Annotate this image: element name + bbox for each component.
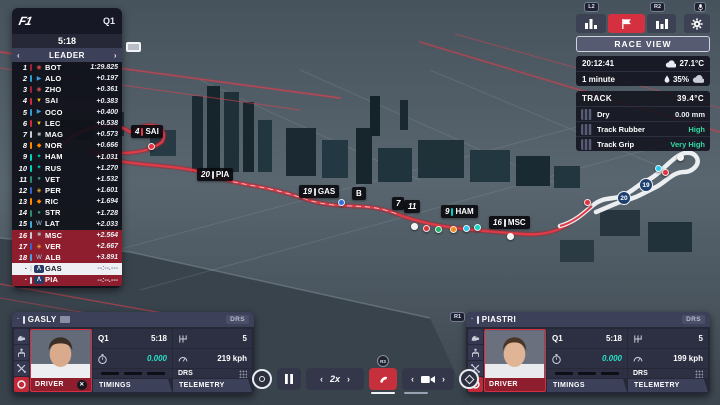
telemetry-view-button[interactable] [647, 14, 677, 33]
piastri-drs-badge: DRS [682, 315, 705, 324]
driver-code: PIA [45, 276, 58, 284]
aston-team-icon: ● [34, 175, 44, 183]
controller-hints: L2 R2 [576, 2, 710, 13]
leaderboard-row-lat[interactable]: 15WLAT+2.033 [12, 219, 122, 230]
team-color-bar [30, 120, 32, 127]
team-color-bar [30, 277, 32, 284]
leaderboard-row-sai[interactable]: 4▼SAI+0.383 [12, 96, 122, 107]
speedometer-icon [178, 354, 188, 363]
team-color-bar [30, 98, 32, 105]
helmet-icon[interactable] [468, 329, 483, 344]
driver-code: OCO [45, 109, 63, 117]
leaderboard-row-mag[interactable]: 7■MAG+0.573 [12, 129, 122, 140]
car-number: 9 [445, 207, 449, 216]
position-number: 7 [16, 131, 27, 139]
piastri-telemetry-tab[interactable]: TELEMETRY [628, 379, 708, 392]
ferrari-team-icon: ▼ [34, 120, 44, 128]
lap-time: +0.538 [96, 120, 118, 127]
team-color-bar [30, 265, 32, 272]
leaderboard-mode-bar: ‹ LEADER › [12, 48, 122, 62]
pit-wall-icon[interactable] [14, 345, 29, 360]
driver-code: ZHO [45, 86, 61, 94]
team-color-bar [30, 142, 32, 149]
piastri-timings-tab[interactable]: TIMINGS [547, 379, 627, 392]
gear-value: 5 [243, 334, 247, 343]
track-condition-row: Dry0.00 mm [576, 106, 710, 121]
car-label-pia[interactable]: 20PIA [197, 168, 233, 181]
drs-inactive-icon [695, 370, 703, 378]
driver-code: HAM [45, 153, 63, 161]
gasly-session-row: Q1 5:18 [93, 329, 172, 348]
r1-hint-label: R1 [450, 312, 465, 322]
team-color-bar [30, 154, 32, 161]
position-number: 1 [16, 64, 27, 72]
driver-code: B [356, 189, 362, 198]
car-label-gas[interactable]: 19GAS [299, 185, 339, 198]
camera-page-underline [404, 392, 428, 394]
session-timer: 5:18 [12, 34, 122, 48]
mic-icon [694, 2, 706, 12]
piastri-delta-row: 0.000 [547, 349, 627, 368]
williams-team-icon: W [34, 254, 44, 262]
gasly-quick-actions [14, 329, 29, 392]
car-number: 11 [408, 202, 416, 211]
piastri-timings-column: Q1 5:18 0.000 TIMINGS [547, 329, 627, 392]
leaderboard-row-alb[interactable]: 18WALB+3.891 [12, 252, 122, 263]
leaderboard-header: F1 Q1 [12, 8, 122, 34]
position-number: 2 [16, 75, 27, 83]
team-color-bar [30, 131, 32, 138]
gasly-delta-row: 0.000 [93, 349, 172, 368]
pause-icon [285, 374, 293, 384]
stopwatch-icon [552, 354, 561, 364]
car-setup-icon[interactable] [14, 361, 29, 376]
gasly-timings-column: Q1 5:18 0.000 TIMINGS [93, 329, 172, 392]
team-color-bar [30, 176, 32, 183]
focus-car-right-icon[interactable] [459, 369, 479, 389]
condition-label: Track Grip [597, 140, 634, 149]
redbull-team-icon: ◈ [34, 187, 44, 195]
leaderboard-row-msc[interactable]: 16■MSC+2.564 [12, 230, 122, 241]
gasly-speed-row: 219 kph [173, 349, 252, 368]
weather-forecast-row: 1 minute 35% [576, 71, 710, 86]
gasly-drs-badge: DRS [226, 315, 249, 324]
lap-time: +0.666 [96, 142, 118, 149]
radio-selected-underline [371, 392, 395, 394]
track-rows: Dry0.00 mmTrack RubberHighTrack GripVery… [576, 106, 710, 151]
focus-car-left-icon[interactable] [252, 369, 272, 389]
piastri-position: · [471, 316, 474, 323]
team-radio-button[interactable]: R3 [369, 368, 397, 390]
alpine-team-icon: ▶ [34, 75, 44, 83]
gasly-telemetry-column: 5 219 kph DRS TELEMETRY [173, 329, 252, 392]
position-number: 3 [16, 86, 27, 94]
driver-code: ALB [45, 254, 61, 262]
driver-code: MSC [45, 232, 62, 240]
track-title: TRACK [582, 94, 612, 103]
standings-view-button[interactable] [576, 14, 606, 33]
track-conditions-header: TRACK 39.4°C [576, 91, 710, 106]
mercedes-team-icon: ✦ [34, 164, 44, 172]
gasly-telemetry-tab[interactable]: TELEMETRY [173, 379, 252, 392]
leaderboard-row-ver[interactable]: 17◈VER+2.667 [12, 241, 122, 252]
leaderboard-panel: F1 Q1 5:18 ‹ LEADER › 1◉BOT1:29.8252▶ALO… [12, 8, 122, 288]
leaderboard-mode-label: LEADER [49, 51, 85, 60]
position-number: 9 [16, 153, 27, 161]
piastri-gear-row: 5 [628, 329, 708, 348]
team-color-bar [23, 316, 25, 324]
team-color-bar [141, 128, 143, 136]
delta-time: 0.000 [602, 354, 622, 363]
car-label-b[interactable]: B [352, 187, 366, 200]
weather-now-row: 20:12:41 27.1°C [576, 56, 710, 71]
humidity-value: 35% [673, 75, 689, 84]
condition-value: Very High [670, 140, 705, 149]
leaderboard-row-gas[interactable]: ·ΛGAS--:--.--- [12, 263, 122, 274]
team-color-bar [30, 254, 32, 261]
r1-button-hint: R1 [450, 312, 465, 322]
driver-panel-piastri: R1 · PIASTRI DRS DRIVER Q1 [466, 312, 710, 394]
track-temperature: 39.4°C [677, 94, 704, 103]
drs-label: DRS [633, 370, 648, 377]
onboard-camera-icon[interactable] [60, 316, 70, 323]
driver-code: PER [45, 187, 61, 195]
car-label-sai[interactable]: 4SAI [131, 125, 163, 138]
position-number: 17 [16, 243, 27, 251]
sim-speed-control: ‹ 2x › [306, 368, 364, 390]
weather-panel: 20:12:41 27.1°C 1 minute 35% [576, 56, 710, 86]
f1-logo: F1 [18, 14, 33, 28]
track-condition-row: Track RubberHigh [576, 121, 710, 136]
driver-code: VER [45, 243, 61, 251]
track-conditions-panel: TRACK 39.4°C Dry0.00 mmTrack RubberHighT… [576, 91, 710, 151]
williams-team-icon: W [34, 220, 44, 228]
car-label-msc[interactable]: 16MSC [489, 216, 530, 229]
lap-time: +0.573 [96, 131, 118, 138]
driver-code: MAG [45, 131, 63, 139]
piastri-session-row: Q1 5:18 [547, 329, 627, 348]
driver-code: SAI [145, 127, 158, 136]
sector-3-bar [147, 372, 165, 375]
piastri-sector-bars [547, 369, 627, 378]
driver-code: VET [45, 176, 60, 184]
lap-time: +1.601 [96, 187, 118, 194]
prev-column-arrow-icon[interactable]: ‹ [17, 51, 20, 60]
driver-code: STR [45, 209, 61, 217]
camera-next-arrow-icon[interactable]: › [439, 374, 448, 384]
pause-button[interactable] [277, 368, 301, 390]
lap-time: --:--.--- [97, 265, 118, 272]
condition-value: 0.00 mm [675, 110, 705, 119]
cloud-forecast-icon [692, 75, 704, 83]
piastri-telemetry-column: 5 199 kph DRS TELEMETRY [628, 329, 708, 392]
piastri-panel-header[interactable]: · PIASTRI DRS [466, 312, 710, 327]
leaderboard-row-ham[interactable]: 9✦HAM+1.031 [12, 152, 122, 163]
ferrari-team-icon: ▼ [34, 97, 44, 105]
clock-time: 20:12:41 [582, 59, 614, 68]
camera-control: ‹ › [402, 368, 454, 390]
speedometer-icon [633, 354, 643, 363]
driver-code: GAS [45, 265, 62, 273]
leaderboard-row-ric[interactable]: 13◆RIC+1.694 [12, 196, 122, 207]
piastri-speed-row: 199 kph [628, 349, 708, 368]
alphatauri-team-icon: Λ [34, 276, 44, 284]
leaderboard-rows: 1◉BOT1:29.8252▶ALO+0.1973◉ZHO+0.3614▼SAI… [12, 62, 122, 288]
position-number: · [16, 276, 27, 284]
car-number: 16 [493, 218, 502, 227]
gearbox-icon [178, 334, 188, 344]
stopwatch-icon [98, 354, 107, 364]
position-number: 5 [16, 109, 27, 117]
team-color-bar [30, 198, 32, 205]
team-color-bar [30, 221, 32, 228]
sector-1-bar [101, 372, 119, 375]
gasly-panel-header[interactable]: · GASLY DRS [12, 312, 254, 327]
driver-code: GAS [318, 187, 335, 196]
gasly-sector-bars [93, 369, 172, 378]
view-buttons [576, 14, 710, 33]
leaderboard-row-per[interactable]: 12◈PER+1.601 [12, 185, 122, 196]
driver-code: PIA [216, 170, 229, 179]
position-number: 11 [16, 176, 27, 184]
car-label-ham[interactable]: 9HAM [441, 205, 478, 218]
lap-time: 1:29.825 [90, 64, 118, 71]
next-column-arrow-icon[interactable]: › [114, 51, 117, 60]
speed-up-arrow-icon[interactable]: › [344, 374, 353, 384]
lap-time: +2.564 [96, 232, 118, 239]
position-number: 16 [16, 232, 27, 240]
sector-1-bar [555, 372, 573, 375]
leaderboard-row-str[interactable]: 14●STR+1.728 [12, 207, 122, 218]
helmet-icon[interactable] [14, 329, 29, 344]
driver-code: NOR [45, 142, 62, 150]
lap-time: +3.891 [96, 254, 118, 261]
alfa-team-icon: ◉ [34, 86, 44, 94]
alphatauri-team-icon: Λ [34, 265, 44, 273]
speed-down-arrow-icon[interactable]: ‹ [317, 374, 326, 384]
driver-label: DRIVER [35, 381, 64, 388]
lap-time: +2.033 [96, 221, 118, 228]
tyre-icon[interactable] [14, 377, 29, 392]
position-number: 4 [16, 97, 27, 105]
drs-inactive-icon [239, 370, 247, 378]
position-number: 6 [16, 120, 27, 128]
dry-surface-icon [581, 109, 592, 120]
hud-panel: L2 R2 RACE VIEW 20:12:41 [576, 2, 710, 151]
leaderboard-row-lec[interactable]: 6▼LEC+0.538 [12, 118, 122, 129]
team-color-bar [314, 188, 316, 196]
lap-time: +0.197 [96, 75, 118, 82]
car-label-11[interactable]: 11 [404, 200, 420, 213]
session-time-left: 5:18 [606, 334, 622, 343]
camera-icon [421, 375, 435, 384]
piastri-drs-row: DRS [628, 369, 708, 378]
gasly-drs-row: DRS [173, 369, 252, 378]
team-color-bar [30, 243, 32, 250]
gasly-gear-row: 5 [173, 329, 252, 348]
track-condition-row: Track GripVery High [576, 136, 710, 151]
driver-panel-gasly: · GASLY DRS DRIVER ✕ Q1 [12, 312, 254, 394]
car-label-7[interactable]: 7 [392, 197, 404, 210]
lap-time: +1.031 [96, 154, 118, 161]
race-view-title-button[interactable]: RACE VIEW [576, 36, 710, 52]
condition-label: Dry [597, 110, 610, 119]
driver-code: SAI [45, 97, 58, 105]
session-time-left: 5:18 [151, 334, 167, 343]
r2-button-hint: R2 [650, 2, 665, 12]
sim-speed-value: 2x [330, 374, 340, 384]
driver-code: ALO [45, 75, 61, 83]
pit-wall-icon[interactable] [468, 345, 483, 360]
race-screen: 19204SAI20PIA19GASB7119HAM16MSC F1 Q1 5:… [0, 0, 720, 405]
position-number: 8 [16, 142, 27, 150]
leaderboard-row-bot[interactable]: 1◉BOT1:29.825 [12, 62, 122, 73]
speed-value: 199 kph [673, 354, 703, 363]
driver-label: DRIVER [489, 381, 518, 388]
gasly-panel-body: DRIVER ✕ Q1 5:18 0.000 TIMINGS [12, 327, 254, 394]
redbull-team-icon: ◈ [34, 243, 44, 251]
weather-change-time: 1 minute [582, 75, 615, 84]
leaderboard-row-pia[interactable]: ·ΛPIA--:--.--- [12, 275, 122, 286]
drs-label: DRS [178, 370, 193, 377]
team-color-bar [477, 316, 479, 324]
driver-code: RIC [45, 198, 59, 206]
condition-value: High [688, 125, 705, 134]
driver-code: BOT [45, 64, 61, 72]
aston-team-icon: ● [34, 209, 44, 217]
alpine-team-icon: ▶ [34, 108, 44, 116]
sector-3-bar [601, 372, 619, 375]
gear-value: 5 [699, 334, 703, 343]
team-color-bar [30, 109, 32, 116]
alfa-team-icon: ◉ [34, 64, 44, 72]
team-color-bar [30, 232, 32, 239]
lap-time: +1.270 [96, 165, 118, 172]
team-color-bar [30, 187, 32, 194]
broadcast-icon[interactable] [126, 42, 141, 52]
lap-time: +2.667 [96, 243, 118, 250]
position-number: 18 [16, 254, 27, 262]
position-number: 12 [16, 187, 27, 195]
position-number: 15 [16, 220, 27, 228]
leaderboard-row-alo[interactable]: 2▶ALO+0.197 [12, 73, 122, 84]
mclaren-team-icon: ◆ [34, 198, 44, 206]
track-grip-icon [581, 139, 592, 150]
car-number: 4 [135, 127, 139, 136]
piastri-portrait: DRIVER [484, 329, 546, 392]
team-color-bar [30, 86, 32, 93]
gasly-timings-tab[interactable]: TIMINGS [93, 379, 172, 392]
lap-time: --:--.--- [97, 277, 118, 284]
driver-code: LAT [45, 220, 60, 228]
droplet-icon [664, 75, 670, 84]
l2-button-hint: L2 [584, 2, 599, 12]
car-number: 7 [396, 199, 400, 208]
speed-value: 219 kph [217, 354, 247, 363]
position-number: 14 [16, 209, 27, 217]
r3-button-hint: R3 [377, 355, 389, 367]
leaderboard-row-zho[interactable]: 3◉ZHO+0.361 [12, 84, 122, 95]
race-view-button-selected[interactable] [608, 14, 645, 33]
haas-team-icon: ■ [34, 131, 44, 139]
leaderboard-row-rus[interactable]: 10✦RUS+1.270 [12, 163, 122, 174]
driver-code: HAM [455, 207, 473, 216]
team-color-bar [30, 75, 32, 82]
sector-2-bar [124, 372, 142, 375]
track-rubber-icon [581, 124, 592, 135]
lap-time: +1.694 [96, 198, 118, 205]
gasly-name: GASLY [28, 315, 57, 324]
air-temperature: 27.1°C [679, 59, 704, 68]
team-color-bar [30, 210, 32, 217]
team-color-bar [30, 165, 32, 172]
gearbox-icon [633, 334, 643, 344]
team-color-bar [30, 64, 32, 71]
close-icon[interactable]: ✕ [77, 380, 87, 390]
settings-button[interactable] [684, 14, 710, 33]
lap-time: +0.361 [96, 86, 118, 93]
position-number: · [16, 265, 27, 273]
session-stage: Q1 [103, 16, 115, 26]
piastri-driver-tag: DRIVER [485, 378, 545, 391]
session-label: Q1 [98, 334, 109, 343]
driver-code: LEC [45, 120, 61, 128]
car-number: 19 [303, 187, 312, 196]
gasly-portrait: DRIVER ✕ [30, 329, 92, 392]
position-number: 10 [16, 165, 27, 173]
session-label: Q1 [552, 334, 563, 343]
radio-phone-icon [377, 373, 389, 385]
camera-prev-arrow-icon[interactable]: ‹ [408, 374, 417, 384]
leaderboard-row-vet[interactable]: 11●VET+1.532 [12, 174, 122, 185]
leaderboard-row-nor[interactable]: 8◆NOR+0.666 [12, 140, 122, 151]
gasly-position: · [17, 316, 20, 323]
delta-time: 0.000 [147, 354, 167, 363]
team-color-bar [504, 219, 506, 227]
lap-time: +1.728 [96, 210, 118, 217]
position-number: 13 [16, 198, 27, 206]
team-color-bar [212, 171, 214, 179]
leaderboard-row-oco[interactable]: 5▶OCO+0.400 [12, 107, 122, 118]
mercedes-team-icon: ✦ [34, 153, 44, 161]
car-number: 20 [201, 170, 210, 179]
driver-code: MSC [508, 218, 526, 227]
lap-time: +0.383 [96, 98, 118, 105]
cloud-icon [665, 60, 676, 68]
playback-controls: ‹ 2x › R3 ‹ › [252, 368, 479, 390]
condition-label: Track Rubber [597, 125, 645, 134]
driver-code: RUS [45, 165, 61, 173]
lap-time: +1.532 [96, 176, 118, 183]
sector-2-bar [578, 372, 596, 375]
gasly-driver-tag: DRIVER ✕ [31, 378, 91, 391]
lap-time: +0.400 [96, 109, 118, 116]
team-color-bar [451, 208, 453, 216]
piastri-name: PIASTRI [482, 315, 516, 324]
mclaren-team-icon: ◆ [34, 142, 44, 150]
haas-team-icon: ■ [34, 231, 44, 239]
piastri-panel-body: DRIVER Q1 5:18 0.000 TIMINGS [466, 327, 710, 394]
